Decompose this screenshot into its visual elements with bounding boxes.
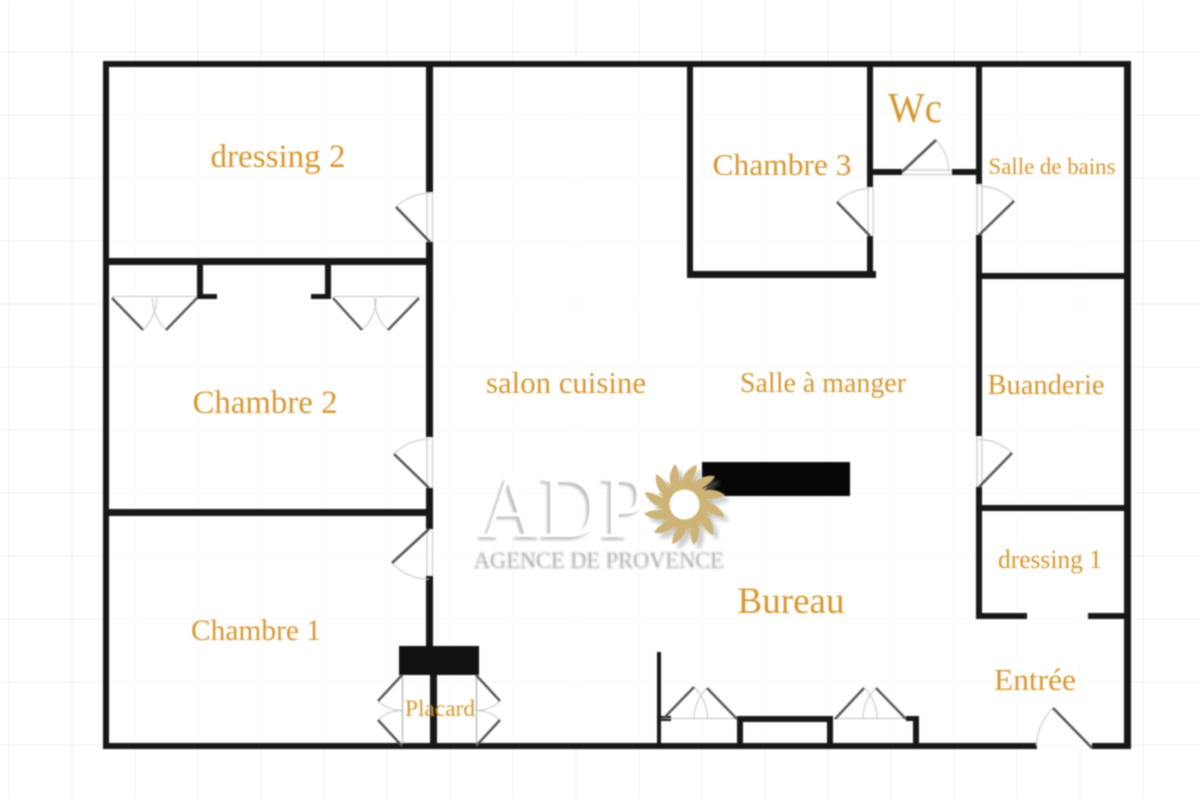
svg-text:Chambre 1: Chambre 1 (191, 614, 321, 647)
svg-text:Salle à manger: Salle à manger (740, 368, 907, 399)
svg-text:Chambre 3: Chambre 3 (713, 147, 852, 182)
svg-text:Entrée: Entrée (994, 662, 1076, 697)
svg-text:Wc: Wc (888, 86, 942, 132)
svg-text:dressing 2: dressing 2 (211, 139, 346, 175)
svg-text:Buanderie: Buanderie (988, 369, 1105, 401)
svg-text:Chambre 2: Chambre 2 (193, 385, 338, 421)
svg-text:ADP: ADP (480, 458, 648, 557)
svg-text:Placard: Placard (405, 696, 476, 721)
svg-text:dressing 1: dressing 1 (998, 545, 1102, 574)
svg-text:Bureau: Bureau (738, 581, 845, 622)
svg-text:AGENCE DE PROVENCE: AGENCE DE PROVENCE (476, 546, 726, 571)
svg-text:Salle de bains: Salle de bains (989, 154, 1116, 179)
svg-text:salon cuisine: salon cuisine (486, 365, 646, 400)
